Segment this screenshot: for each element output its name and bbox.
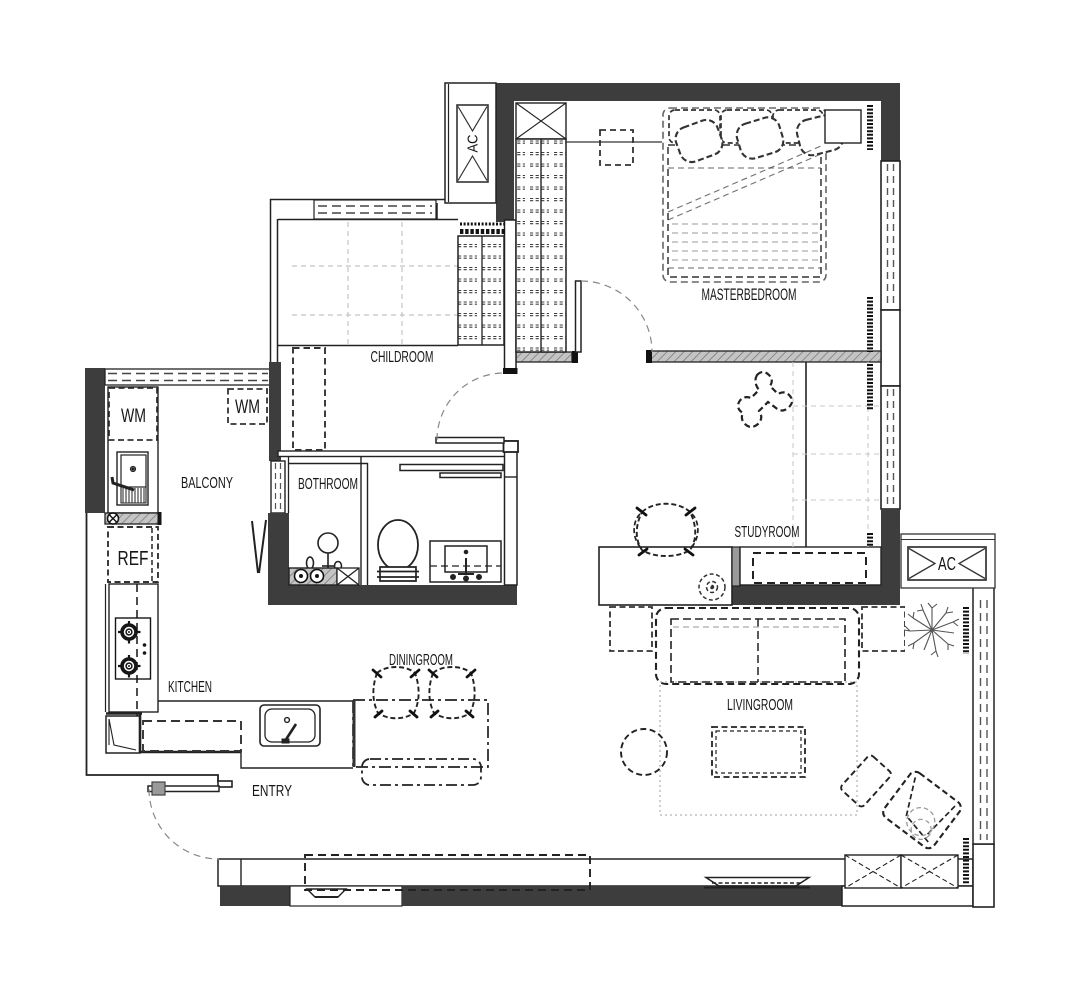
- svg-text:MASTERBEDROOM: MASTERBEDROOM: [702, 286, 797, 304]
- svg-text:AC: AC: [466, 135, 482, 153]
- svg-text:CHILDROOM: CHILDROOM: [371, 349, 434, 366]
- svg-text:REF: REF: [118, 548, 149, 570]
- svg-text:DININGROOM: DININGROOM: [389, 652, 453, 669]
- svg-text:STUDYROOM: STUDYROOM: [735, 524, 800, 541]
- svg-text:BALCONY: BALCONY: [181, 475, 233, 492]
- svg-text:KITCHEN: KITCHEN: [168, 679, 212, 696]
- svg-text:AC: AC: [938, 554, 956, 574]
- svg-text:WM: WM: [121, 406, 146, 427]
- svg-text:LIVINGROOM: LIVINGROOM: [727, 697, 793, 714]
- svg-text:WM: WM: [235, 397, 260, 418]
- svg-text:BOTHROOM: BOTHROOM: [298, 476, 358, 493]
- svg-text:ENTRY: ENTRY: [252, 783, 292, 800]
